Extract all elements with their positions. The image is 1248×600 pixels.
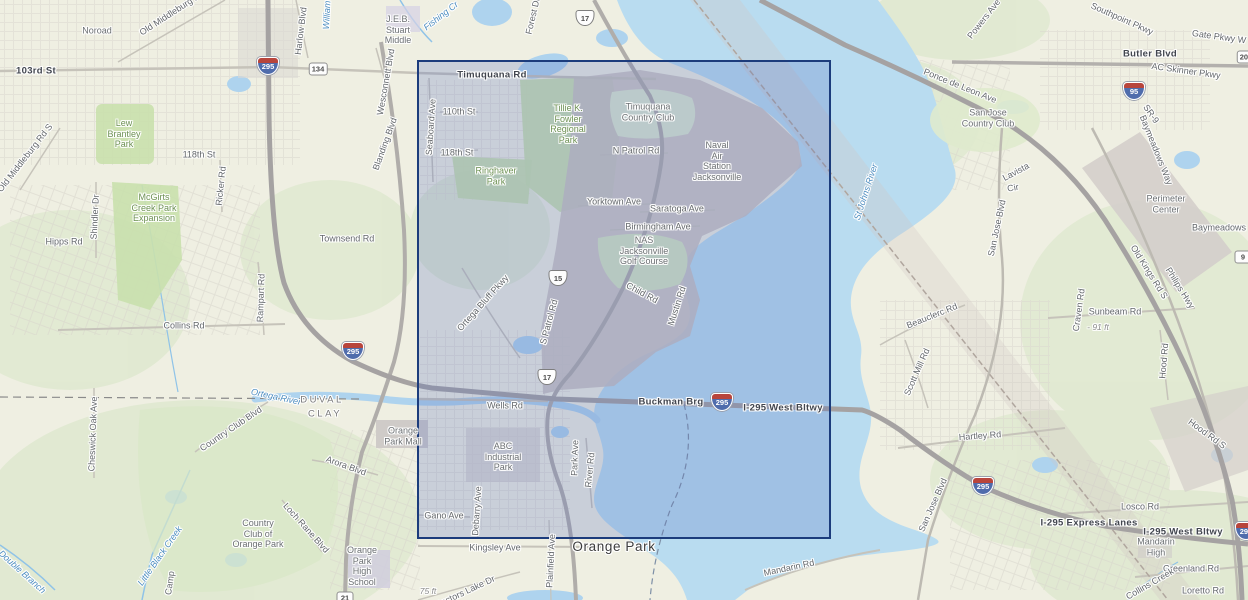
topo-map-canvas[interactable]: NoroadOld Middleburg Rd103rd StHarlow Bl…: [0, 0, 1248, 600]
selection-rectangle[interactable]: [417, 60, 831, 539]
